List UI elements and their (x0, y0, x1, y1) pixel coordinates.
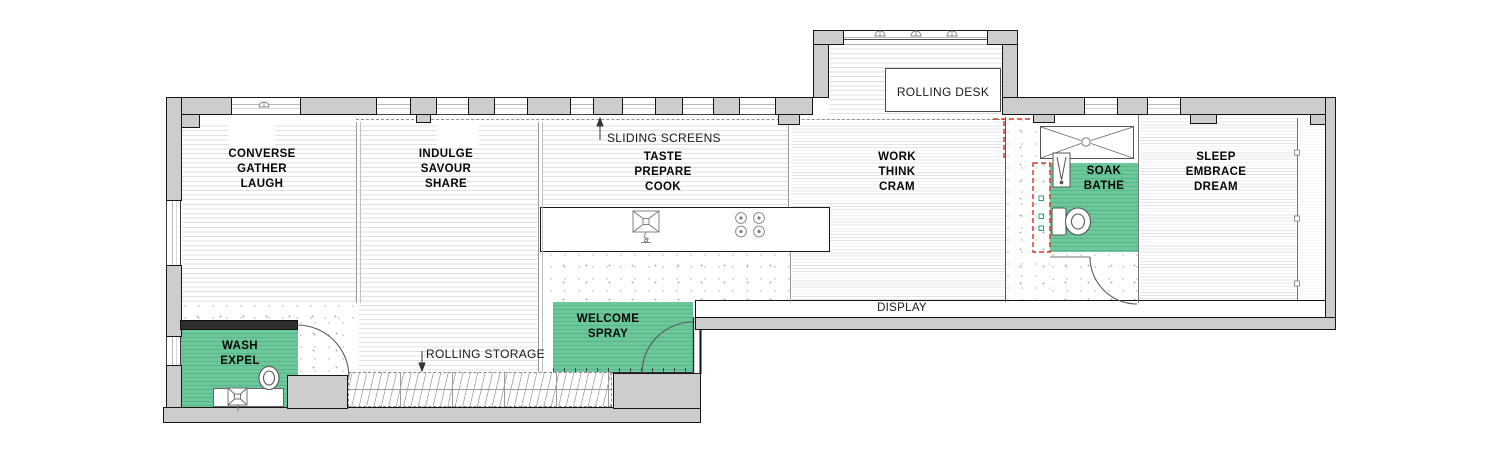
dining-line-2: SAVOUR (386, 162, 506, 177)
nook-right-cap (987, 30, 1018, 45)
living-line-3: LAUGH (202, 177, 322, 192)
office-line-1: WORK (837, 150, 957, 165)
kitchen-speckle-floor (548, 252, 790, 302)
wall-chunk-wc-door (287, 375, 348, 409)
top-wall-pier-8-tab (778, 114, 800, 125)
top-wall-pier-7 (713, 97, 740, 115)
bedroom-line-1: SLEEP (1156, 150, 1276, 165)
wc-line-2: EXPEL (188, 354, 292, 369)
top-wall-pier-3 (468, 97, 495, 115)
bedroom-line-2: EMBRACE (1156, 165, 1276, 180)
kitchen-line-1: TASTE (603, 150, 723, 165)
top-wall-right-long (1180, 97, 1335, 115)
partition-office-bath (1005, 117, 1006, 302)
partition-living-dining-2 (360, 122, 361, 303)
wc-vanity-counter (213, 388, 284, 407)
living-line-2: GATHER (202, 162, 322, 177)
partition-kitchen-office-2 (790, 252, 791, 302)
bedroom-floor (1140, 113, 1297, 303)
bedroom-label: SLEEP EMBRACE DREAM (1156, 150, 1276, 195)
bathtub (1040, 126, 1134, 159)
office-line-3: CRAM (837, 180, 957, 195)
top-wall-right-seg-a-tab (1033, 114, 1055, 123)
office-label: WORK THINK CRAM (837, 150, 957, 195)
sliding-screens-label: SLIDING SCREENS (607, 132, 721, 145)
display-label: DISPLAY (852, 302, 952, 315)
rolling-desk-label: ROLLING DESK (885, 86, 1001, 99)
sliding-screens-track (356, 119, 1005, 120)
nook-window-band (842, 30, 989, 40)
bedroom-wall-tab (1190, 114, 1217, 124)
wc-top-wall (180, 320, 298, 330)
living-alcove (228, 122, 275, 145)
partition-bath-bedroom (1138, 113, 1139, 303)
top-wall-right-pier (1117, 97, 1148, 115)
wall-chunk-entry-corner (613, 373, 701, 409)
bathroom-line-2: BATHE (1052, 179, 1156, 194)
top-wall-pier-6 (655, 97, 683, 115)
rolling-storage-wardrobe (348, 372, 612, 407)
bathroom-line-1: SOAK (1052, 164, 1156, 179)
wc-line-1: WASH (188, 339, 292, 354)
rolling-storage-label: ROLLING STORAGE (426, 348, 545, 361)
right-wall (1325, 97, 1336, 330)
partition-living-dining (356, 122, 357, 303)
top-wall-pier-5 (593, 97, 623, 115)
partition-dining-kitchen (538, 122, 539, 372)
floor-plan: CONVERSE GATHER LAUGH INDULGE SAVOUR SHA… (0, 0, 1500, 450)
top-wall-right-seg-a (1002, 97, 1085, 115)
partition-kitchen-office (788, 122, 789, 207)
entry-line-2: SPRAY (556, 327, 660, 342)
dining-line-1: INDULGE (386, 147, 506, 162)
partition-dining-kitchen-2 (542, 122, 543, 372)
bedroom-line-3: DREAM (1156, 180, 1276, 195)
top-wall-pier-1 (300, 97, 377, 115)
living-line-1: CONVERSE (202, 147, 322, 162)
bedroom-wardrobe (1297, 118, 1325, 315)
left-wall-window-2 (166, 337, 181, 365)
top-wall-pier-2-tab (416, 114, 431, 123)
kitchen-line-3: COOK (603, 180, 723, 195)
display-shelf (695, 300, 1328, 318)
living-speckle-floor (182, 303, 356, 320)
dining-room-label: INDULGE SAVOUR SHARE (386, 147, 506, 192)
bottom-wall-right (695, 317, 1336, 330)
kitchen-island (540, 207, 830, 252)
top-wall-pier-8 (775, 97, 813, 115)
bottom-wall-left (163, 407, 701, 423)
bedroom-corner-step (1310, 114, 1326, 125)
dining-alcove (437, 122, 479, 145)
dining-line-3: SHARE (386, 177, 506, 192)
kitchen-label: TASTE PREPARE COOK (603, 150, 723, 195)
wc-door-speckle-floor (298, 320, 356, 375)
entry-label: WELCOME SPRAY (556, 312, 660, 342)
office-line-2: THINK (837, 165, 957, 180)
kitchen-line-2: PREPARE (603, 165, 723, 180)
wc-label: WASH EXPEL (188, 339, 292, 369)
left-wall-window-1 (166, 201, 181, 265)
left-wall-upper (166, 97, 182, 201)
top-wall-pier-2 (410, 97, 437, 115)
entry-line-1: WELCOME (556, 312, 660, 327)
top-wall-pier-4 (527, 97, 571, 115)
bath-speckle-bottom (1050, 252, 1138, 302)
nook-left-cap (813, 30, 844, 45)
nook-sill (829, 40, 1002, 45)
wall-corner-step (180, 114, 200, 128)
bathroom-label: SOAK BATHE (1052, 164, 1156, 194)
living-room-label: CONVERSE GATHER LAUGH (202, 147, 322, 192)
